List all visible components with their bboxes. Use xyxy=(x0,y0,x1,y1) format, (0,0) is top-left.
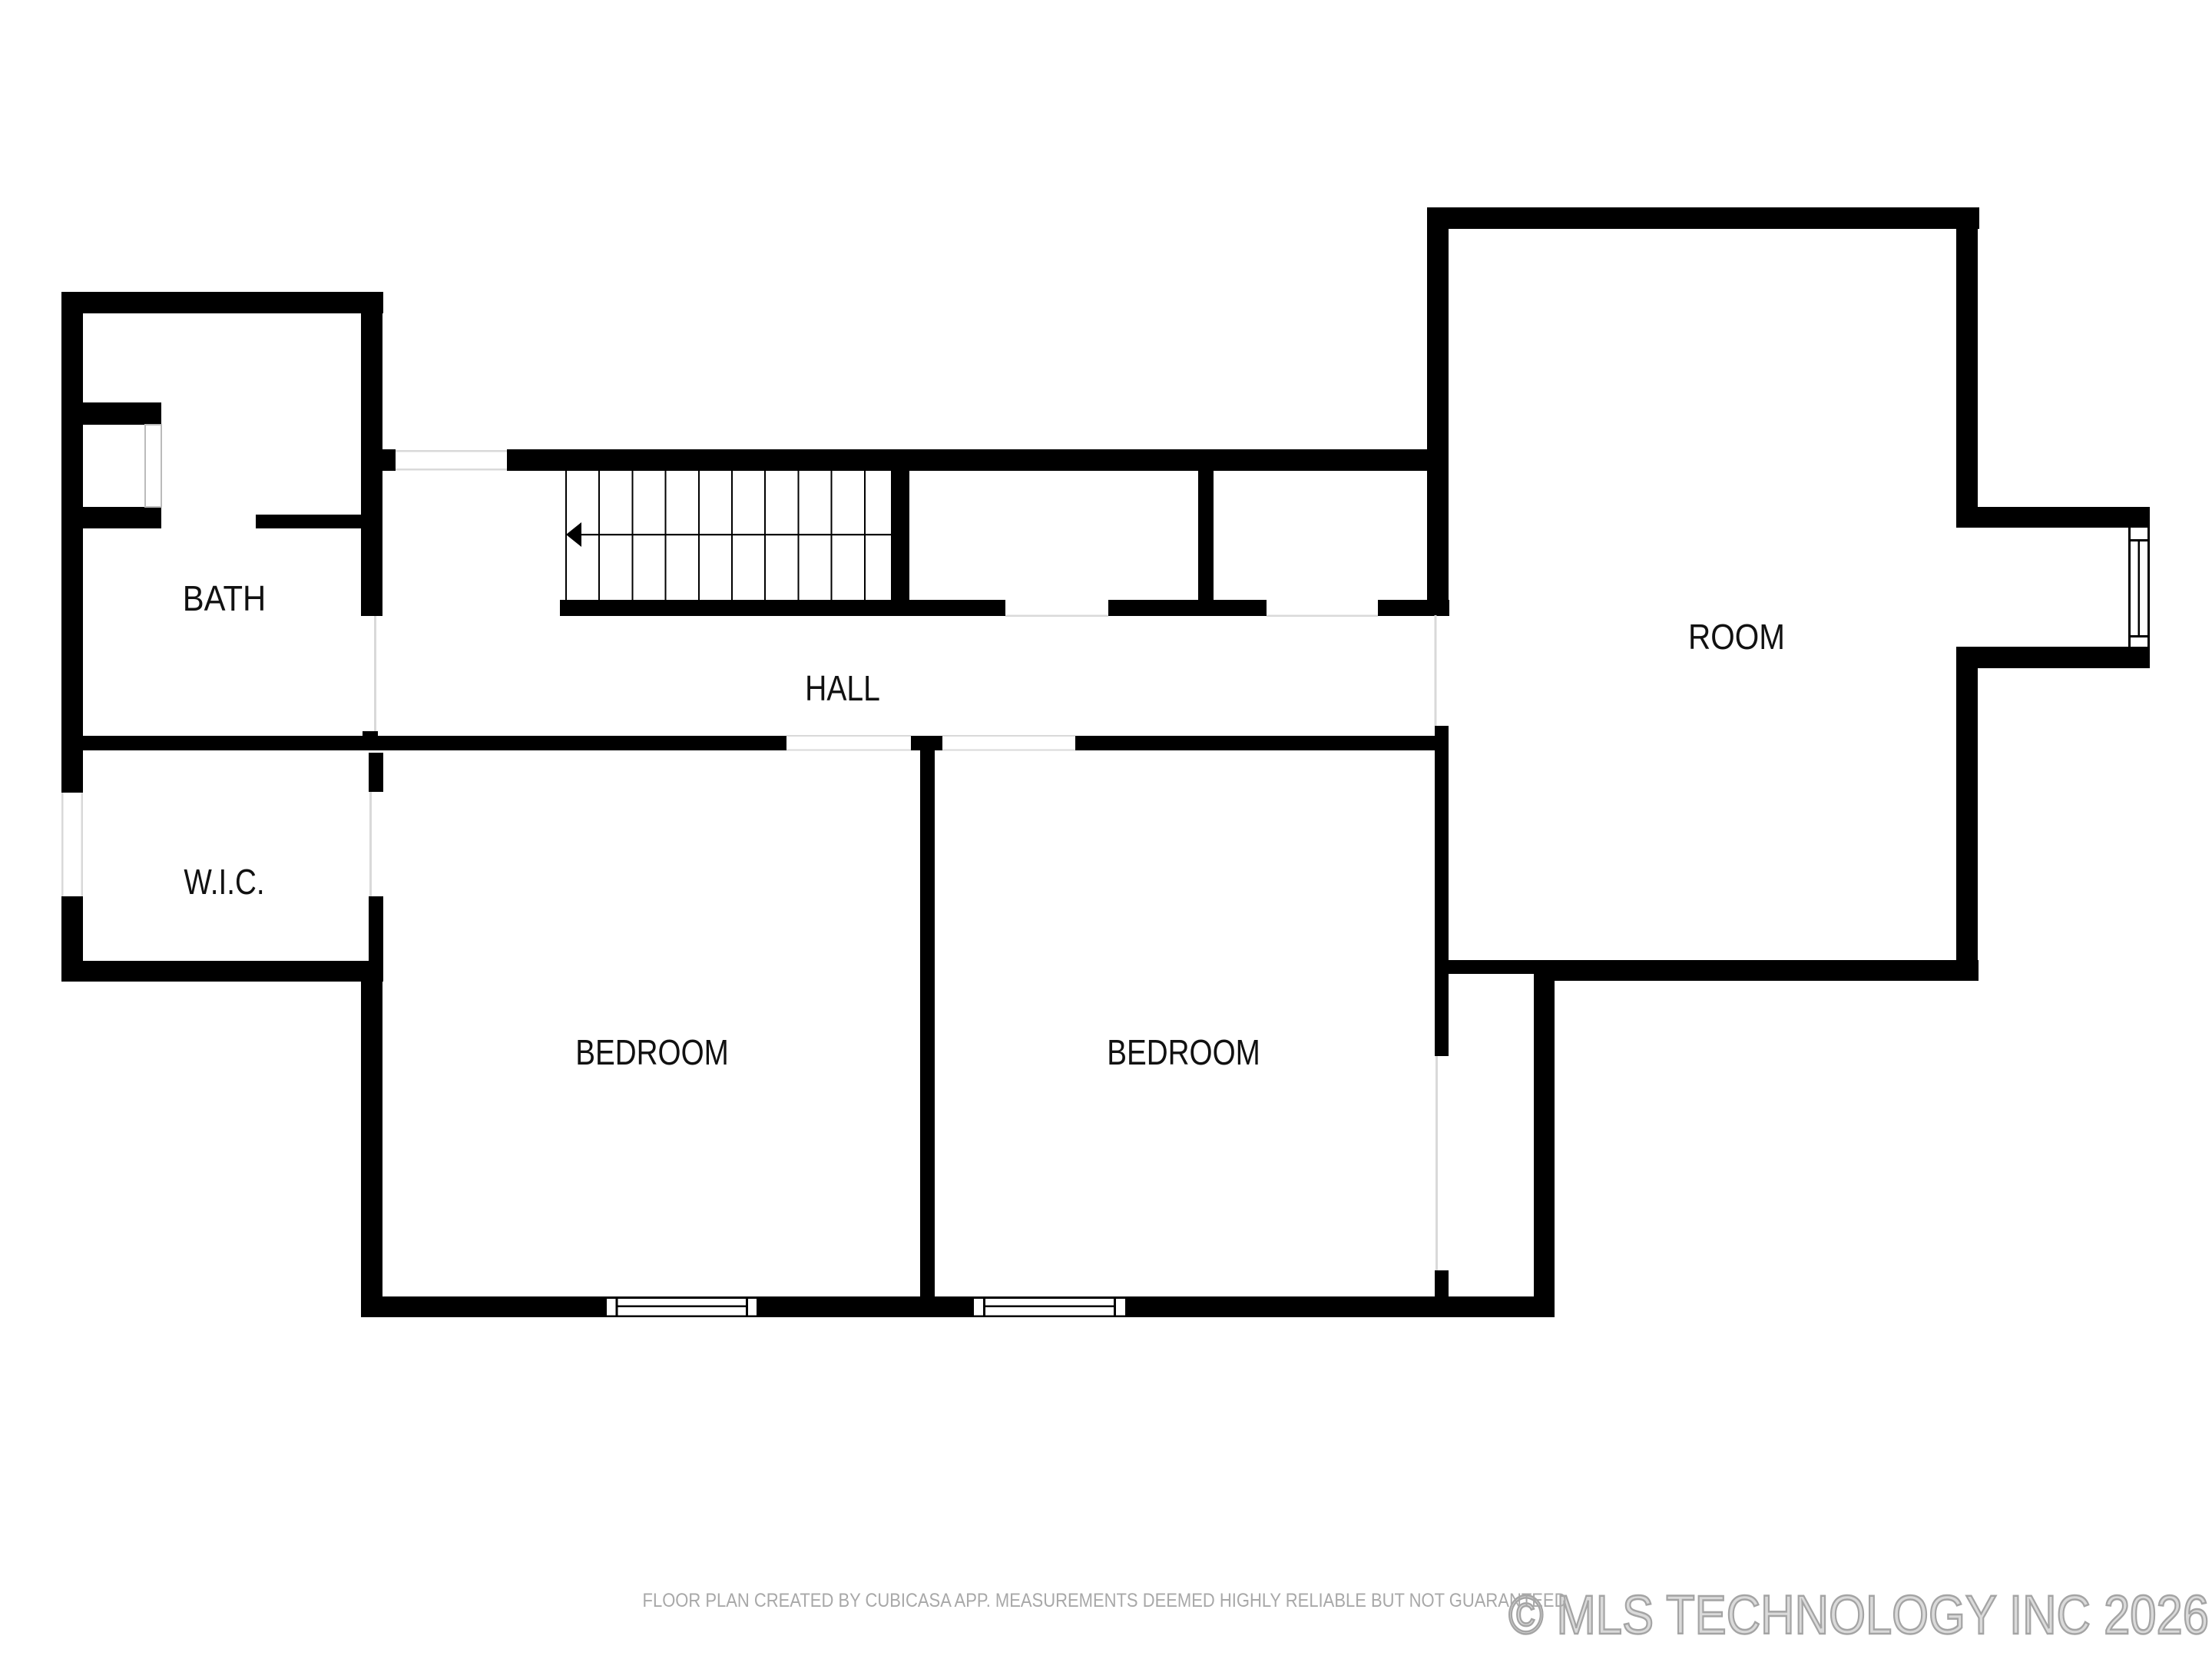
svg-text:ROOM: ROOM xyxy=(1688,618,1785,657)
svg-text:BEDROOM: BEDROOM xyxy=(1107,1033,1260,1072)
svg-text:BATH: BATH xyxy=(183,579,267,618)
svg-text:BEDROOM: BEDROOM xyxy=(575,1033,729,1072)
svg-text:FLOOR PLAN CREATED BY CUBICASA: FLOOR PLAN CREATED BY CUBICASA APP. MEAS… xyxy=(643,1590,1567,1611)
svg-text:HALL: HALL xyxy=(805,669,880,709)
svg-text:© MLS TECHNOLOGY INC 2026: © MLS TECHNOLOGY INC 2026 xyxy=(1508,1585,2209,1646)
svg-text:W.I.C.: W.I.C. xyxy=(184,863,264,902)
